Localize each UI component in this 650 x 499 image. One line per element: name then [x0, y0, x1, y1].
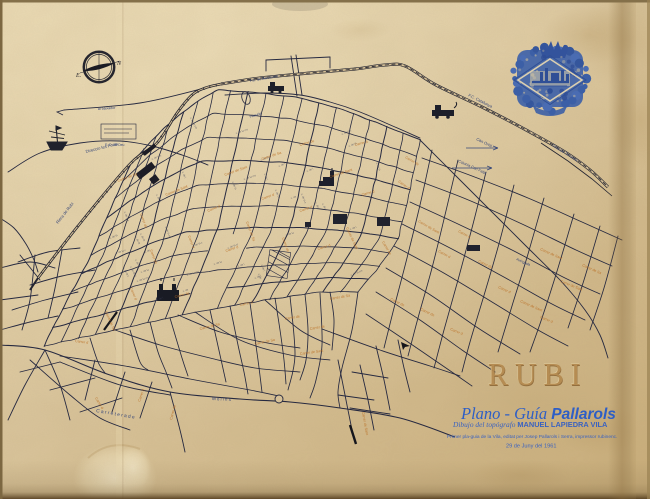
- svg-text:M o l i n s: M o l i n s: [212, 396, 232, 402]
- svg-text:E.: E.: [75, 73, 81, 79]
